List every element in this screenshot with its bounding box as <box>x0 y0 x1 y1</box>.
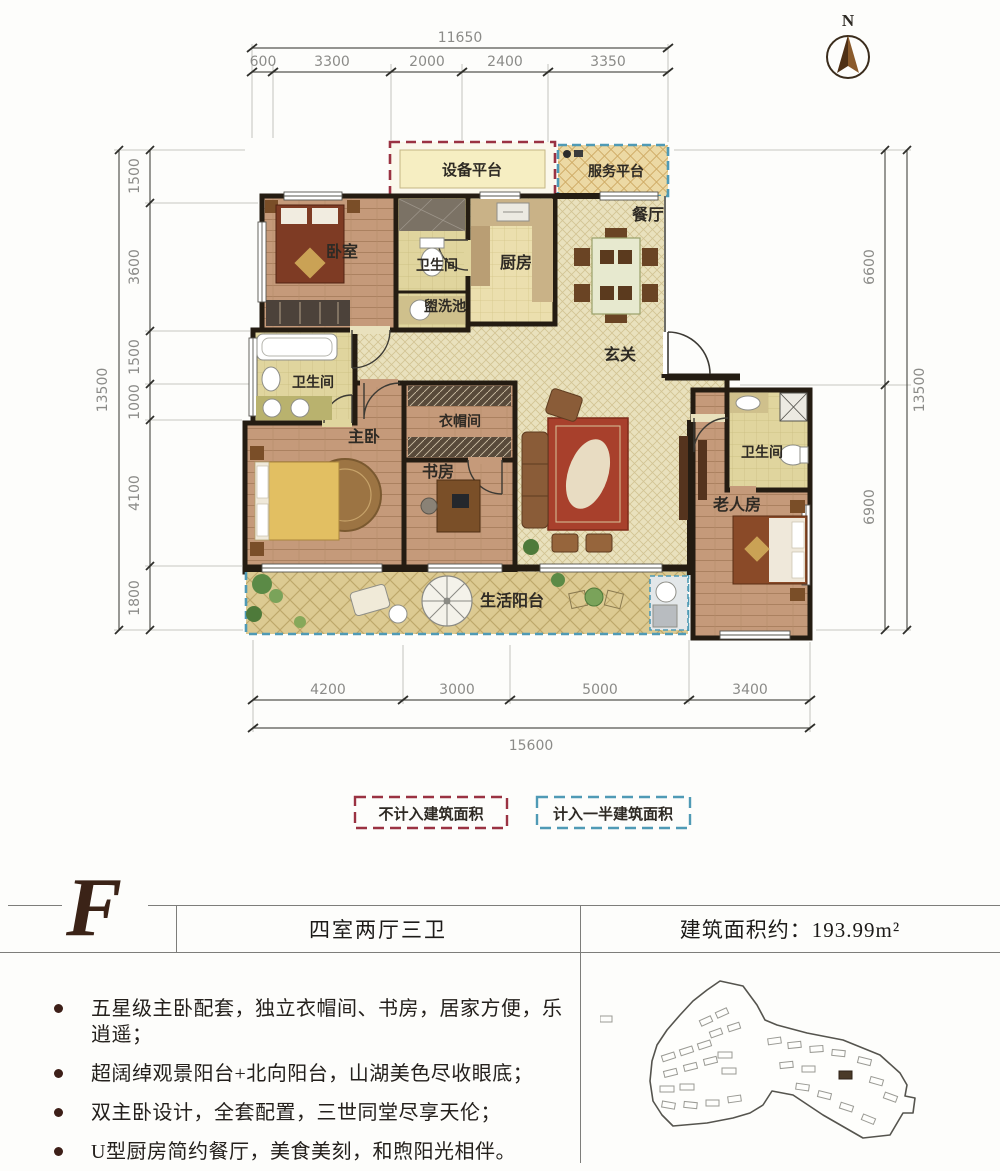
feature-item: 双主卧设计，全套配置，三世同堂尽享天伦； <box>46 1100 566 1126</box>
dim-top-total: 11650 <box>438 30 483 46</box>
dim-right-seg1: 6900 <box>862 489 878 525</box>
feature-text: U型厨房简约餐厅，美食美刻，和煦阳光相伴。 <box>91 1139 516 1165</box>
dim-left-seg3: 1000 <box>127 384 143 420</box>
dim-top-seg3: 2400 <box>487 54 523 70</box>
label-washbasin: 盥洗池 <box>424 298 466 315</box>
label-kitchen: 厨房 <box>500 253 532 272</box>
dim-left-seg0: 1500 <box>127 158 143 194</box>
dim-bottom-total: 15600 <box>509 738 554 754</box>
legend-half-label: 计入一半建筑面积 <box>553 805 673 823</box>
divider-top-right <box>148 905 1000 906</box>
divider-top-left <box>8 905 62 906</box>
label-elder-room: 老人房 <box>712 495 761 514</box>
dim-right-total: 13500 <box>912 368 928 413</box>
site-highlight-unit <box>839 1071 852 1079</box>
dim-right-seg0: 6600 <box>862 249 878 285</box>
north-arrow: N <box>827 11 869 78</box>
dim-left-total: 13500 <box>95 368 111 413</box>
dim-left-seg4: 4100 <box>127 475 143 511</box>
dim-top-seg0: 600 <box>250 54 277 70</box>
dim-bottom-seg2: 5000 <box>582 682 618 698</box>
dim-bottom-seg3: 3400 <box>732 682 768 698</box>
feature-list: 五星级主卧配套，独立衣帽间、书房，居家方便，乐逍遥； 超阔绰观景阳台+北向阳台，… <box>46 996 566 1171</box>
label-foyer: 玄关 <box>604 345 636 364</box>
label-dining: 餐厅 <box>631 205 664 224</box>
layout-type: 四室两厅三卫 <box>176 914 580 944</box>
site-plan <box>600 958 1000 1171</box>
label-cloakroom: 衣帽间 <box>439 413 481 430</box>
dim-top-seg1: 3300 <box>314 54 350 70</box>
service-platform: 服务平台 <box>558 145 668 196</box>
bullet-icon <box>54 1108 63 1117</box>
feature-text: 五星级主卧配套，独立衣帽间、书房，居家方便，乐逍遥； <box>91 996 566 1048</box>
divider-bottom <box>0 952 1000 953</box>
floorplan-page: 11650 600 3300 2000 2400 3350 13500 1500… <box>0 0 1000 1171</box>
label-master-bedroom: 主卧 <box>348 427 380 446</box>
floorplan-drawing: 11650 600 3300 2000 2400 3350 13500 1500… <box>0 0 1000 870</box>
equipment-platform: 设备平台 <box>390 142 555 196</box>
legend-excluded-label: 不计入建筑面积 <box>378 805 483 823</box>
feature-item: U型厨房简约餐厅，美食美刻，和煦阳光相伴。 <box>46 1139 566 1165</box>
dim-bottom-seg1: 3000 <box>439 682 475 698</box>
north-label: N <box>842 11 855 30</box>
site-outline <box>650 981 915 1138</box>
dim-top-seg4: 3350 <box>590 54 626 70</box>
label-bedroom: 卧室 <box>326 242 358 261</box>
label-bathroom-elder: 卫生间 <box>741 444 783 461</box>
bullet-icon <box>54 1069 63 1078</box>
bullet-icon <box>54 1004 63 1013</box>
feature-text: 超阔绰观景阳台+北向阳台，山湖美色尽收眼底； <box>91 1061 533 1087</box>
label-bathroom-top: 卫生间 <box>416 257 458 274</box>
dim-left-seg1: 3600 <box>127 249 143 285</box>
area-text: 建筑面积约：193.99m² <box>580 914 1000 944</box>
dim-left-seg5: 1800 <box>127 580 143 616</box>
label-balcony: 生活阳台 <box>480 591 544 610</box>
dim-bottom-seg0: 4200 <box>310 682 346 698</box>
equipment-platform-label: 设备平台 <box>442 161 502 179</box>
dim-left-seg2: 1500 <box>127 339 143 375</box>
legend: 不计入建筑面积 计入一半建筑面积 <box>355 797 690 828</box>
label-bathroom-master: 卫生间 <box>292 374 334 391</box>
unit-letter: F <box>66 866 122 950</box>
service-platform-label: 服务平台 <box>588 163 644 180</box>
feature-item: 五星级主卧配套，独立衣帽间、书房，居家方便，乐逍遥； <box>46 996 566 1048</box>
feature-text: 双主卧设计，全套配置，三世同堂尽享天伦； <box>91 1100 501 1126</box>
dim-top-seg2: 2000 <box>409 54 445 70</box>
label-study: 书房 <box>422 462 454 481</box>
bullet-icon <box>54 1147 63 1156</box>
feature-item: 超阔绰观景阳台+北向阳台，山湖美色尽收眼底； <box>46 1061 566 1087</box>
